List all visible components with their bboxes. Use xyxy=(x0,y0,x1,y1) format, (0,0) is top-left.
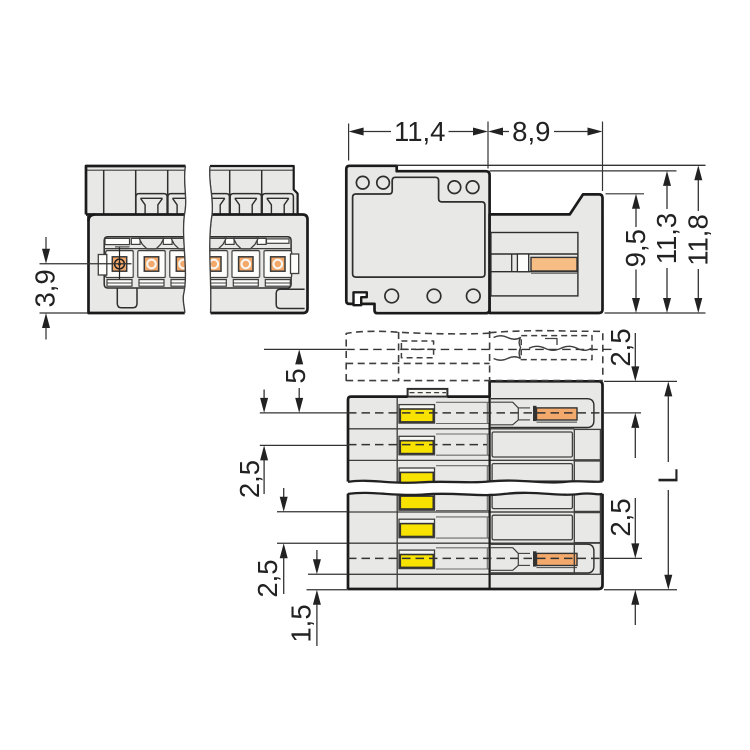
svg-text:3,9: 3,9 xyxy=(29,269,60,307)
svg-text:9,5: 9,5 xyxy=(620,229,651,267)
svg-text:L: L xyxy=(652,468,683,483)
svg-text:11,3: 11,3 xyxy=(651,213,682,264)
svg-text:2,5: 2,5 xyxy=(252,559,283,597)
svg-text:1,5: 1,5 xyxy=(285,604,316,642)
svg-text:5: 5 xyxy=(280,368,311,383)
svg-text:8,9: 8,9 xyxy=(512,116,550,147)
svg-text:2,5: 2,5 xyxy=(234,460,265,498)
svg-text:2,5: 2,5 xyxy=(605,328,636,366)
svg-text:11,8: 11,8 xyxy=(682,214,713,265)
svg-text:11,4: 11,4 xyxy=(394,116,445,147)
svg-text:2,5: 2,5 xyxy=(605,498,636,536)
